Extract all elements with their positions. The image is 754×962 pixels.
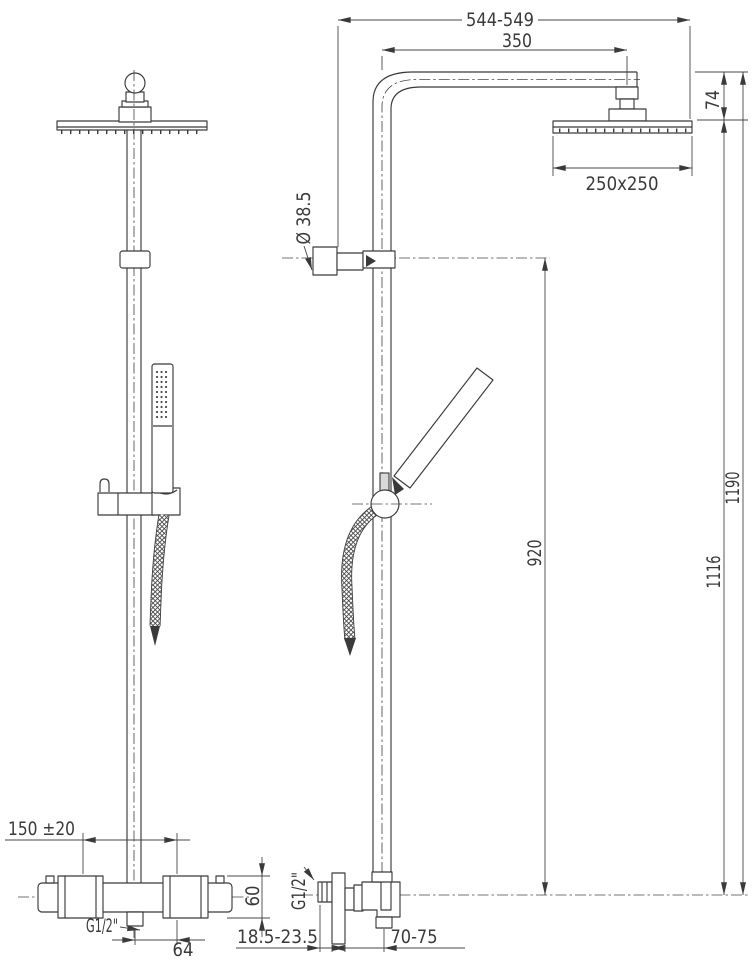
dim-riser-height-label: 920 [524, 540, 546, 567]
hand-shower-body [152, 364, 173, 493]
escutcheon [332, 873, 345, 944]
joint-base [119, 107, 151, 122]
dimensions: 544-549 350 74 1116 1190 920 250x25 [5, 8, 748, 961]
dim-head-size-label: 250x250 [586, 173, 659, 195]
dim-valve-height-label: 60 [242, 886, 264, 907]
dim-height-head-bottom: 1116 [703, 120, 725, 895]
head-connector-top [616, 87, 638, 99]
technical-drawing-page: 544-549 350 74 1116 1190 920 250x25 [0, 0, 754, 962]
hand-shower-side [380, 368, 493, 495]
dim-outlet-depth-label: 70-75 [391, 926, 438, 948]
shower-system-drawing: 544-549 350 74 1116 1190 920 250x25 [0, 0, 754, 962]
dim-height-head-bottom-label: 1116 [703, 556, 725, 589]
dim-wall-clearance-label: 18.5-23.5 [237, 926, 318, 948]
wall-nipple [318, 882, 332, 902]
dim-wall-thread-label: G1/2" [288, 872, 310, 910]
mixer-valve-side [302, 872, 748, 944]
ball-joint [125, 73, 145, 93]
dim-inlet-spacing: 150 ±20 [5, 818, 190, 874]
mixer-valve-front [18, 876, 252, 926]
holder-bracket [98, 493, 154, 515]
riser-arm-centerline [382, 80, 640, 874]
overhead-shower-side [553, 87, 692, 133]
dim-top-width-label: 544-549 [466, 9, 534, 31]
dim-outlet-offset: 64 [112, 920, 205, 961]
adapter-small [345, 888, 354, 910]
dim-wall-thread: G1/2" [288, 867, 314, 910]
hand-shower-front [152, 364, 173, 493]
dim-outlet-depth: 70-75 [325, 926, 465, 952]
wall-bracket-side [282, 247, 550, 275]
shower-hose-front [150, 515, 164, 646]
pipe-connector-front [120, 251, 150, 268]
dim-head-drop: 74 [695, 72, 748, 120]
valve-end-button-left [46, 876, 54, 883]
dim-arm-reach-label: 350 [502, 30, 532, 52]
dim-outlet-offset-label: 64 [173, 939, 194, 961]
head-connector-mid [620, 99, 634, 109]
riser-nut [372, 872, 392, 882]
dim-arm-reach: 350 [382, 30, 627, 85]
hand-shower-angled [394, 368, 493, 488]
holder-pin [380, 473, 389, 492]
side-view [282, 72, 748, 944]
hose-end [344, 638, 356, 656]
front-view [18, 70, 252, 938]
shower-hose-side [344, 511, 374, 656]
riser-arm-inner [391, 87, 637, 873]
dim-head-size: 250x250 [553, 136, 692, 195]
dim-bracket-diameter-label: Ø 38.5 [293, 192, 315, 245]
dim-head-drop-label: 74 [702, 90, 724, 110]
valve-outlet [127, 912, 143, 926]
overhead-shower-front [57, 73, 207, 132]
bracket-step [337, 253, 363, 270]
hose-end [150, 626, 160, 646]
dim-outlet-thread-label: G1/2" [86, 915, 118, 937]
dim-total-height-label: 1190 [722, 472, 744, 505]
head-connector-base [609, 109, 646, 121]
dim-inlet-spacing-label: 150 ±20 [8, 818, 75, 840]
dim-riser-height: 920 [524, 258, 546, 895]
holder-hook [100, 479, 109, 492]
valve-end-button-right [216, 876, 224, 883]
valve-cartridge [381, 878, 391, 910]
bracket-wall-plate [313, 247, 337, 275]
dim-total-height: 1190 [722, 72, 744, 895]
